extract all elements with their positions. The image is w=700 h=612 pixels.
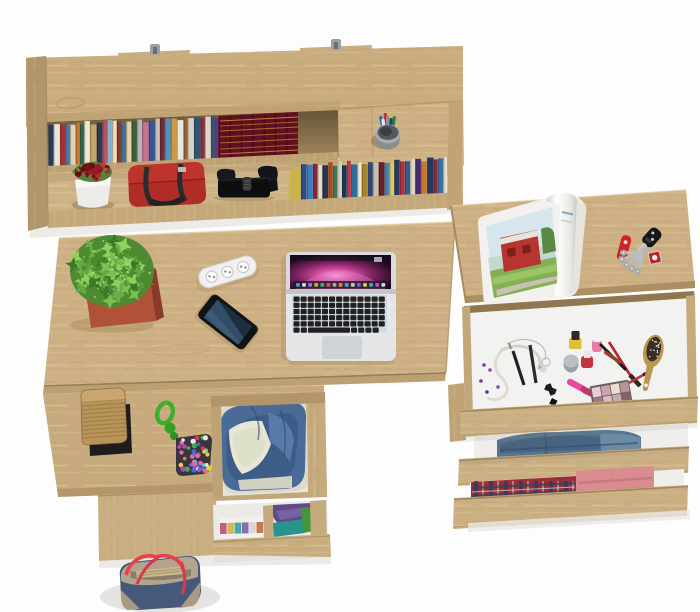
svg-text:5: 5	[550, 387, 555, 397]
